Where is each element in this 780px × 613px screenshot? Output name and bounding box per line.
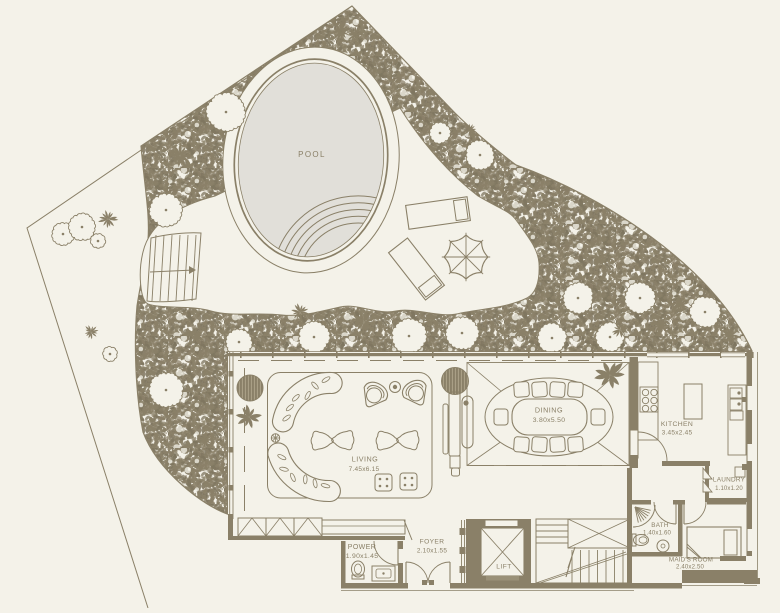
svg-text:LIVING: LIVING (352, 455, 379, 464)
svg-text:LAUNDRY: LAUNDRY (713, 477, 746, 484)
svg-text:3.80x5.50: 3.80x5.50 (533, 417, 566, 424)
svg-text:DINING: DINING (535, 406, 563, 415)
svg-text:POOL: POOL (298, 150, 326, 159)
svg-text:FOYER: FOYER (420, 539, 445, 546)
svg-text:2.40x2.50: 2.40x2.50 (676, 564, 705, 571)
svg-text:1.40x1.60: 1.40x1.60 (643, 530, 672, 537)
svg-text:BATH: BATH (651, 522, 669, 529)
svg-text:3.45x2.45: 3.45x2.45 (662, 430, 693, 437)
svg-text:2.10x1.55: 2.10x1.55 (417, 548, 448, 555)
svg-text:POWER: POWER (348, 544, 376, 551)
svg-text:KITCHEN: KITCHEN (661, 421, 693, 428)
svg-text:LIFT: LIFT (496, 564, 512, 571)
svg-text:1.90x1.45: 1.90x1.45 (346, 553, 379, 560)
svg-text:MAID'S ROOM: MAID'S ROOM (669, 557, 713, 564)
svg-text:7.45x6.15: 7.45x6.15 (349, 466, 380, 473)
svg-text:1.10x1.20: 1.10x1.20 (715, 486, 743, 492)
